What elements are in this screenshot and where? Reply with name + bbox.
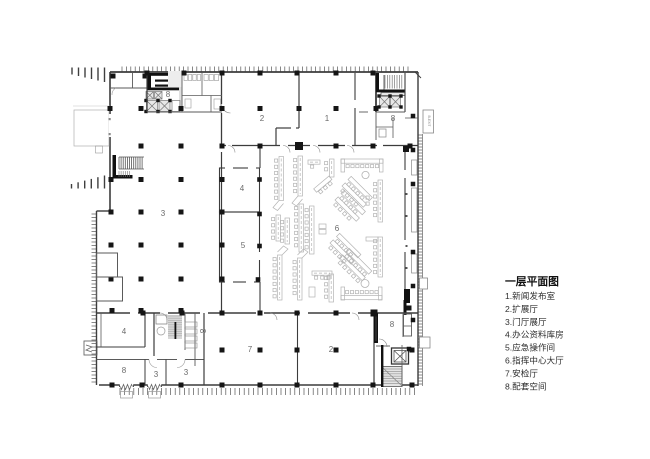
svg-text:4: 4 xyxy=(122,327,127,336)
svg-text:一层平面图: 一层平面图 xyxy=(505,275,559,288)
svg-text:1: 1 xyxy=(325,114,330,123)
svg-text:6.指挥中心大厅: 6.指挥中心大厅 xyxy=(505,355,564,366)
svg-text:2: 2 xyxy=(329,345,334,354)
svg-text:8: 8 xyxy=(391,114,396,123)
svg-text:3.门厅展厅: 3.门厅展厅 xyxy=(505,316,547,327)
svg-text:2.扩展厅: 2.扩展厅 xyxy=(505,303,538,314)
svg-text:8: 8 xyxy=(166,90,171,99)
svg-text:8: 8 xyxy=(198,329,207,334)
svg-text:B-EXIT: B-EXIT xyxy=(427,116,431,127)
svg-text:8: 8 xyxy=(390,320,395,329)
svg-text:3: 3 xyxy=(161,209,166,218)
svg-text:2: 2 xyxy=(260,114,265,123)
svg-text:5: 5 xyxy=(241,241,246,250)
svg-text:7.安检厅: 7.安检厅 xyxy=(505,367,538,378)
svg-text:4: 4 xyxy=(240,184,245,193)
svg-text:6: 6 xyxy=(335,224,340,233)
svg-text:3: 3 xyxy=(154,370,159,379)
svg-text:1.新闻发布室: 1.新闻发布室 xyxy=(505,290,556,301)
svg-text:8: 8 xyxy=(122,366,127,375)
svg-text:7: 7 xyxy=(248,345,253,354)
svg-text:4.办公资料库房: 4.办公资料库房 xyxy=(505,329,564,340)
svg-text:3: 3 xyxy=(184,368,189,377)
svg-text:8.配套空间: 8.配套空间 xyxy=(505,380,547,391)
svg-text:5.应急操作间: 5.应急操作间 xyxy=(505,342,555,353)
